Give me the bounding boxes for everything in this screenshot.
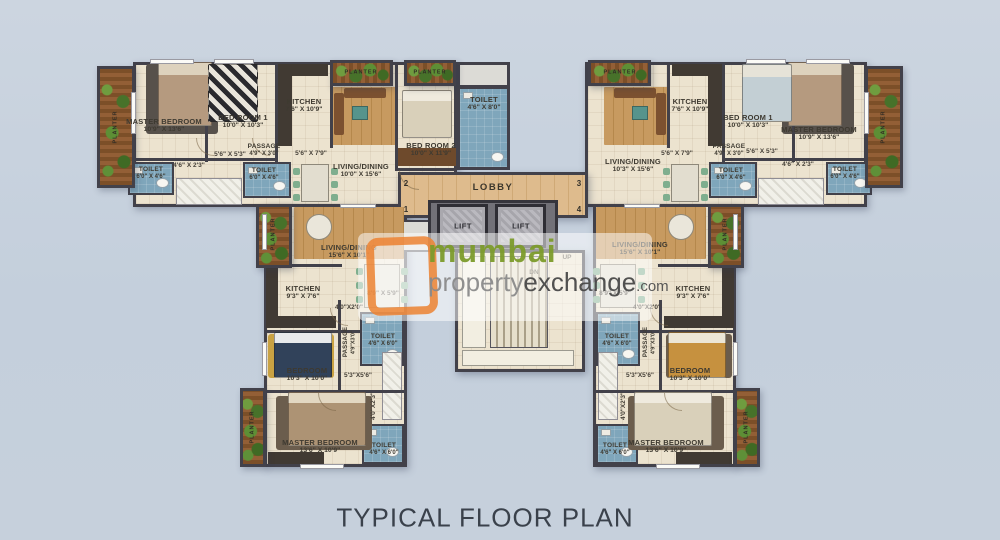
- stair-landing-bottom: [462, 350, 574, 366]
- dim-label: 5'6" X 5'3": [214, 151, 246, 159]
- room-name: BED ROOM 2: [406, 141, 456, 150]
- planter-label: PLANTER: [271, 218, 278, 251]
- room-dims: 4'6" X 6'0": [602, 341, 631, 349]
- room-name: MASTER BEDROOM: [282, 438, 358, 447]
- room-name: KITCHEN: [676, 284, 711, 293]
- master-bed: [788, 62, 842, 126]
- room-label-toilet1-br: TOILET 4'6" X 6'0": [602, 333, 631, 349]
- room-dims: 6'0" X 4'6": [716, 175, 745, 183]
- flat-number-1: 1: [404, 205, 408, 215]
- lobby-label: LOBBY: [473, 182, 514, 194]
- dim-label: 5'3"X5'6": [626, 372, 654, 380]
- room-label-toilet1-tr: TOILET 6'0" X 4'6": [716, 167, 745, 183]
- brand-property: property: [428, 267, 523, 297]
- kitchen-counter: [664, 316, 734, 328]
- room-name: TOILET: [600, 442, 629, 450]
- dressing-area-bottom-left: [382, 352, 402, 420]
- window: [746, 59, 786, 64]
- planter-label: PLANTER: [881, 111, 888, 144]
- room-dims: 6'0" X 4'6": [249, 175, 278, 183]
- room-name: BED ROOM 1: [218, 113, 268, 122]
- room-label-toilet2-bl: TOILET 4'6" X 6'0": [369, 442, 398, 458]
- duct-top-left: [457, 62, 510, 88]
- watermark: mumbai propertyexchange.com: [358, 233, 652, 321]
- dim-label: 4'6" X 2'3": [782, 161, 814, 169]
- room-name: KITCHEN: [286, 284, 321, 293]
- coffee-table: [352, 106, 368, 120]
- room-name: BEDROOM: [287, 366, 328, 375]
- room-name: PASSAGE: [713, 143, 746, 151]
- window: [624, 204, 660, 208]
- room-dims: 10'0" X 11'9": [406, 150, 456, 158]
- bed: [402, 90, 452, 138]
- kitchen-counter: [672, 64, 708, 76]
- brand-name-top: mumbai: [428, 235, 557, 267]
- room-dims: 4'9" X 3'0": [248, 151, 281, 159]
- room-dims: 10'9" X 13'6": [781, 134, 857, 142]
- room-dims: 4'6" X 6'0": [368, 341, 397, 349]
- room-label-toilet1-tl: TOILET 6'0" X 4'6": [136, 166, 165, 182]
- room-name: PASSAGE: [343, 327, 351, 357]
- room-dims: 10'3" X 15'6": [605, 166, 661, 174]
- room-label-kitchen-tr: KITCHEN 7'6" X 10'9": [672, 97, 709, 115]
- sofa: [334, 93, 344, 135]
- room-name: PASSAGE: [643, 327, 651, 357]
- brand-suffix: .com: [636, 278, 669, 295]
- lift-label-1: LIFT: [454, 221, 472, 230]
- dim-label: 5'6" X 7'9": [661, 150, 693, 158]
- planter-label: PLANTER: [113, 111, 120, 144]
- round-table: [306, 214, 332, 240]
- room-dims: 4'6" X 8'0": [467, 104, 500, 112]
- room-dims: 9'3" X 7'6": [676, 293, 711, 301]
- sofa: [344, 88, 386, 98]
- dining-table: [301, 164, 329, 202]
- planter-label: PLANTER: [604, 70, 637, 77]
- window: [806, 59, 850, 64]
- room-dims: 10'3" X 10'0": [287, 375, 328, 383]
- room-name: MASTER BEDROOM: [628, 438, 704, 447]
- page-title: TYPICAL FLOOR PLAN: [336, 503, 633, 534]
- window: [733, 342, 738, 376]
- room-label-passage-br: PASSAGE 4'9"X3'0": [643, 327, 657, 357]
- room-dims: 4'6" X 6'0": [600, 450, 629, 458]
- wall: [133, 158, 209, 161]
- room-label-toilet2-tl: TOILET 6'0" X 4'6": [249, 167, 278, 183]
- room-label-bedroom2-tl: BED ROOM 2 10'0" X 11'9": [406, 141, 456, 159]
- room-label-master-bedroom-br: MASTER BEDROOM 13'6" X 10'9": [628, 438, 704, 456]
- planter-label: PLANTER: [345, 70, 378, 77]
- room-label-kitchen-br: KITCHEN 9'3" X 7'6": [676, 284, 711, 302]
- flat-number-2: 2: [404, 179, 408, 189]
- room-label-toilet-attached-tl: TOILET 4'6" X 8'0": [467, 95, 500, 113]
- room-label-bedroom1-tr: BED ROOM 1 10'0" X 10'3": [723, 113, 773, 131]
- room-label-passage-tl: PASSAGE 4'9" X 3'0": [248, 143, 281, 159]
- window: [214, 59, 254, 64]
- room-name: BED ROOM 1: [723, 113, 773, 122]
- room-dims: 7'6" X 10'9": [286, 106, 323, 114]
- coffee-table: [632, 106, 648, 120]
- brand-exchange: exchange: [523, 267, 636, 297]
- room-label-master-bedroom-bl: MASTER BEDROOM 13'6" X 10'9": [282, 438, 358, 456]
- room-name: TOILET: [249, 167, 278, 175]
- room-dims: 7'6" X 10'9": [672, 106, 709, 114]
- dim-label: 4'0"X2'3": [620, 392, 628, 420]
- room-label-toilet2-br: TOILET 4'6" X 6'0": [600, 442, 629, 458]
- room-name: TOILET: [368, 333, 397, 341]
- room-dims: 10'9" X 13'6": [126, 126, 202, 134]
- room-label-bedroom-bl: BEDROOM 10'3" X 10'0": [287, 366, 328, 384]
- kitchen-counter: [292, 64, 328, 76]
- planter-label: PLANTER: [414, 70, 447, 77]
- room-name: BEDROOM: [670, 366, 711, 375]
- window: [656, 464, 700, 469]
- room-dims: 10'0" X 15'6": [333, 171, 389, 179]
- flat-number-3: 3: [577, 179, 581, 189]
- room-name: TOILET: [467, 95, 500, 104]
- room-label-kitchen-bl: KITCHEN 9'3" X 7'6": [286, 284, 321, 302]
- round-table: [668, 214, 694, 240]
- room-label-master-bedroom-tr: MASTER BEDROOM 10'9" X 13'6": [781, 125, 857, 143]
- kitchen-counter: [708, 64, 722, 146]
- room-dims: 4'6" X 6'0": [369, 450, 398, 458]
- room-dims: 4'9"X3'0": [350, 327, 357, 357]
- room-name: TOILET: [716, 167, 745, 175]
- room-dims: 13'6" X 10'9": [282, 447, 358, 455]
- window: [150, 59, 194, 64]
- room-name: LIVING/DINING: [605, 157, 661, 166]
- dressing-area-bottom-right: [598, 352, 618, 420]
- dim-label: 5'6" X 7'9": [295, 150, 327, 158]
- room-label-bedroom-br: BEDROOM 10'3" X 10'0": [670, 366, 711, 384]
- room-dims: 10'3" X 10'0": [670, 375, 711, 383]
- sofa: [656, 93, 666, 135]
- sofa: [614, 88, 656, 98]
- window: [262, 342, 267, 376]
- room-label-living-tl: LIVING/DINING 10'0" X 15'6": [333, 162, 389, 180]
- room-name: MASTER BEDROOM: [781, 125, 857, 134]
- room-label-passage-tr: PASSAGE 4'9" X 3'0": [713, 143, 746, 159]
- room-name: PASSAGE: [248, 143, 281, 151]
- room-name: TOILET: [602, 333, 631, 341]
- window: [300, 464, 344, 469]
- room-dims: 13'6" X 10'9": [628, 447, 704, 455]
- room-dims: 4'9"X3'0": [650, 327, 657, 357]
- dining-chairs: [663, 168, 670, 175]
- wall: [667, 62, 670, 148]
- room-name: KITCHEN: [672, 97, 709, 106]
- room-dims: 9'3" X 7'6": [286, 293, 321, 301]
- room-label-toilet2-tr: TOILET 6'0" X 4'6": [830, 166, 859, 182]
- dim-label: 4'6" X 2'3": [173, 162, 205, 170]
- window: [262, 214, 267, 250]
- room-name: KITCHEN: [286, 97, 323, 106]
- window: [864, 92, 869, 134]
- room-name: TOILET: [136, 166, 165, 174]
- room-dims: 6'0" X 4'6": [136, 174, 165, 182]
- dining-chairs: [293, 168, 300, 175]
- room-dims: 6'0" X 4'6": [830, 174, 859, 182]
- room-label-master-bedroom-tl: MASTER BEDROOM 10'9" X 13'6": [126, 117, 202, 135]
- brand-name-bottom: propertyexchange.com: [428, 269, 669, 295]
- room-label-living-tr: LIVING/DINING 10'3" X 15'6": [605, 157, 661, 175]
- room-name: TOILET: [830, 166, 859, 174]
- dim-label: 5'3"X5'6": [344, 372, 372, 380]
- lift-label-2: LIFT: [512, 221, 530, 230]
- room-name: MASTER BEDROOM: [126, 117, 202, 126]
- planter-label: PLANTER: [723, 218, 730, 251]
- dim-label: 4'0"X2'3": [370, 392, 378, 420]
- room-label-bedroom1-tl: BED ROOM 1 10'0" X 10'3": [218, 113, 268, 131]
- window: [733, 214, 738, 250]
- room-name: LIVING/DINING: [333, 162, 389, 171]
- dressing-area-top-right: [758, 178, 824, 205]
- dressing-area-top-left: [176, 178, 242, 205]
- room-label-passage-bl: PASSAGE 4'9"X3'0": [343, 327, 357, 357]
- dim-label: 5'6" X 5'3": [746, 148, 778, 156]
- room-dims: 4'9" X 3'0": [713, 151, 746, 159]
- room-dims: 10'0" X 10'3": [218, 122, 268, 130]
- room-label-kitchen-tl: KITCHEN 7'6" X 10'9": [286, 97, 323, 115]
- window: [340, 204, 376, 208]
- dining-table: [671, 164, 699, 202]
- room-dims: 10'0" X 10'3": [723, 122, 773, 130]
- planter-label: PLANTER: [744, 411, 751, 444]
- planter-label: PLANTER: [250, 411, 257, 444]
- flat-number-4: 4: [577, 205, 581, 215]
- room-name: TOILET: [369, 442, 398, 450]
- room-label-toilet1-bl: TOILET 4'6" X 6'0": [368, 333, 397, 349]
- kitchen-counter: [266, 316, 336, 328]
